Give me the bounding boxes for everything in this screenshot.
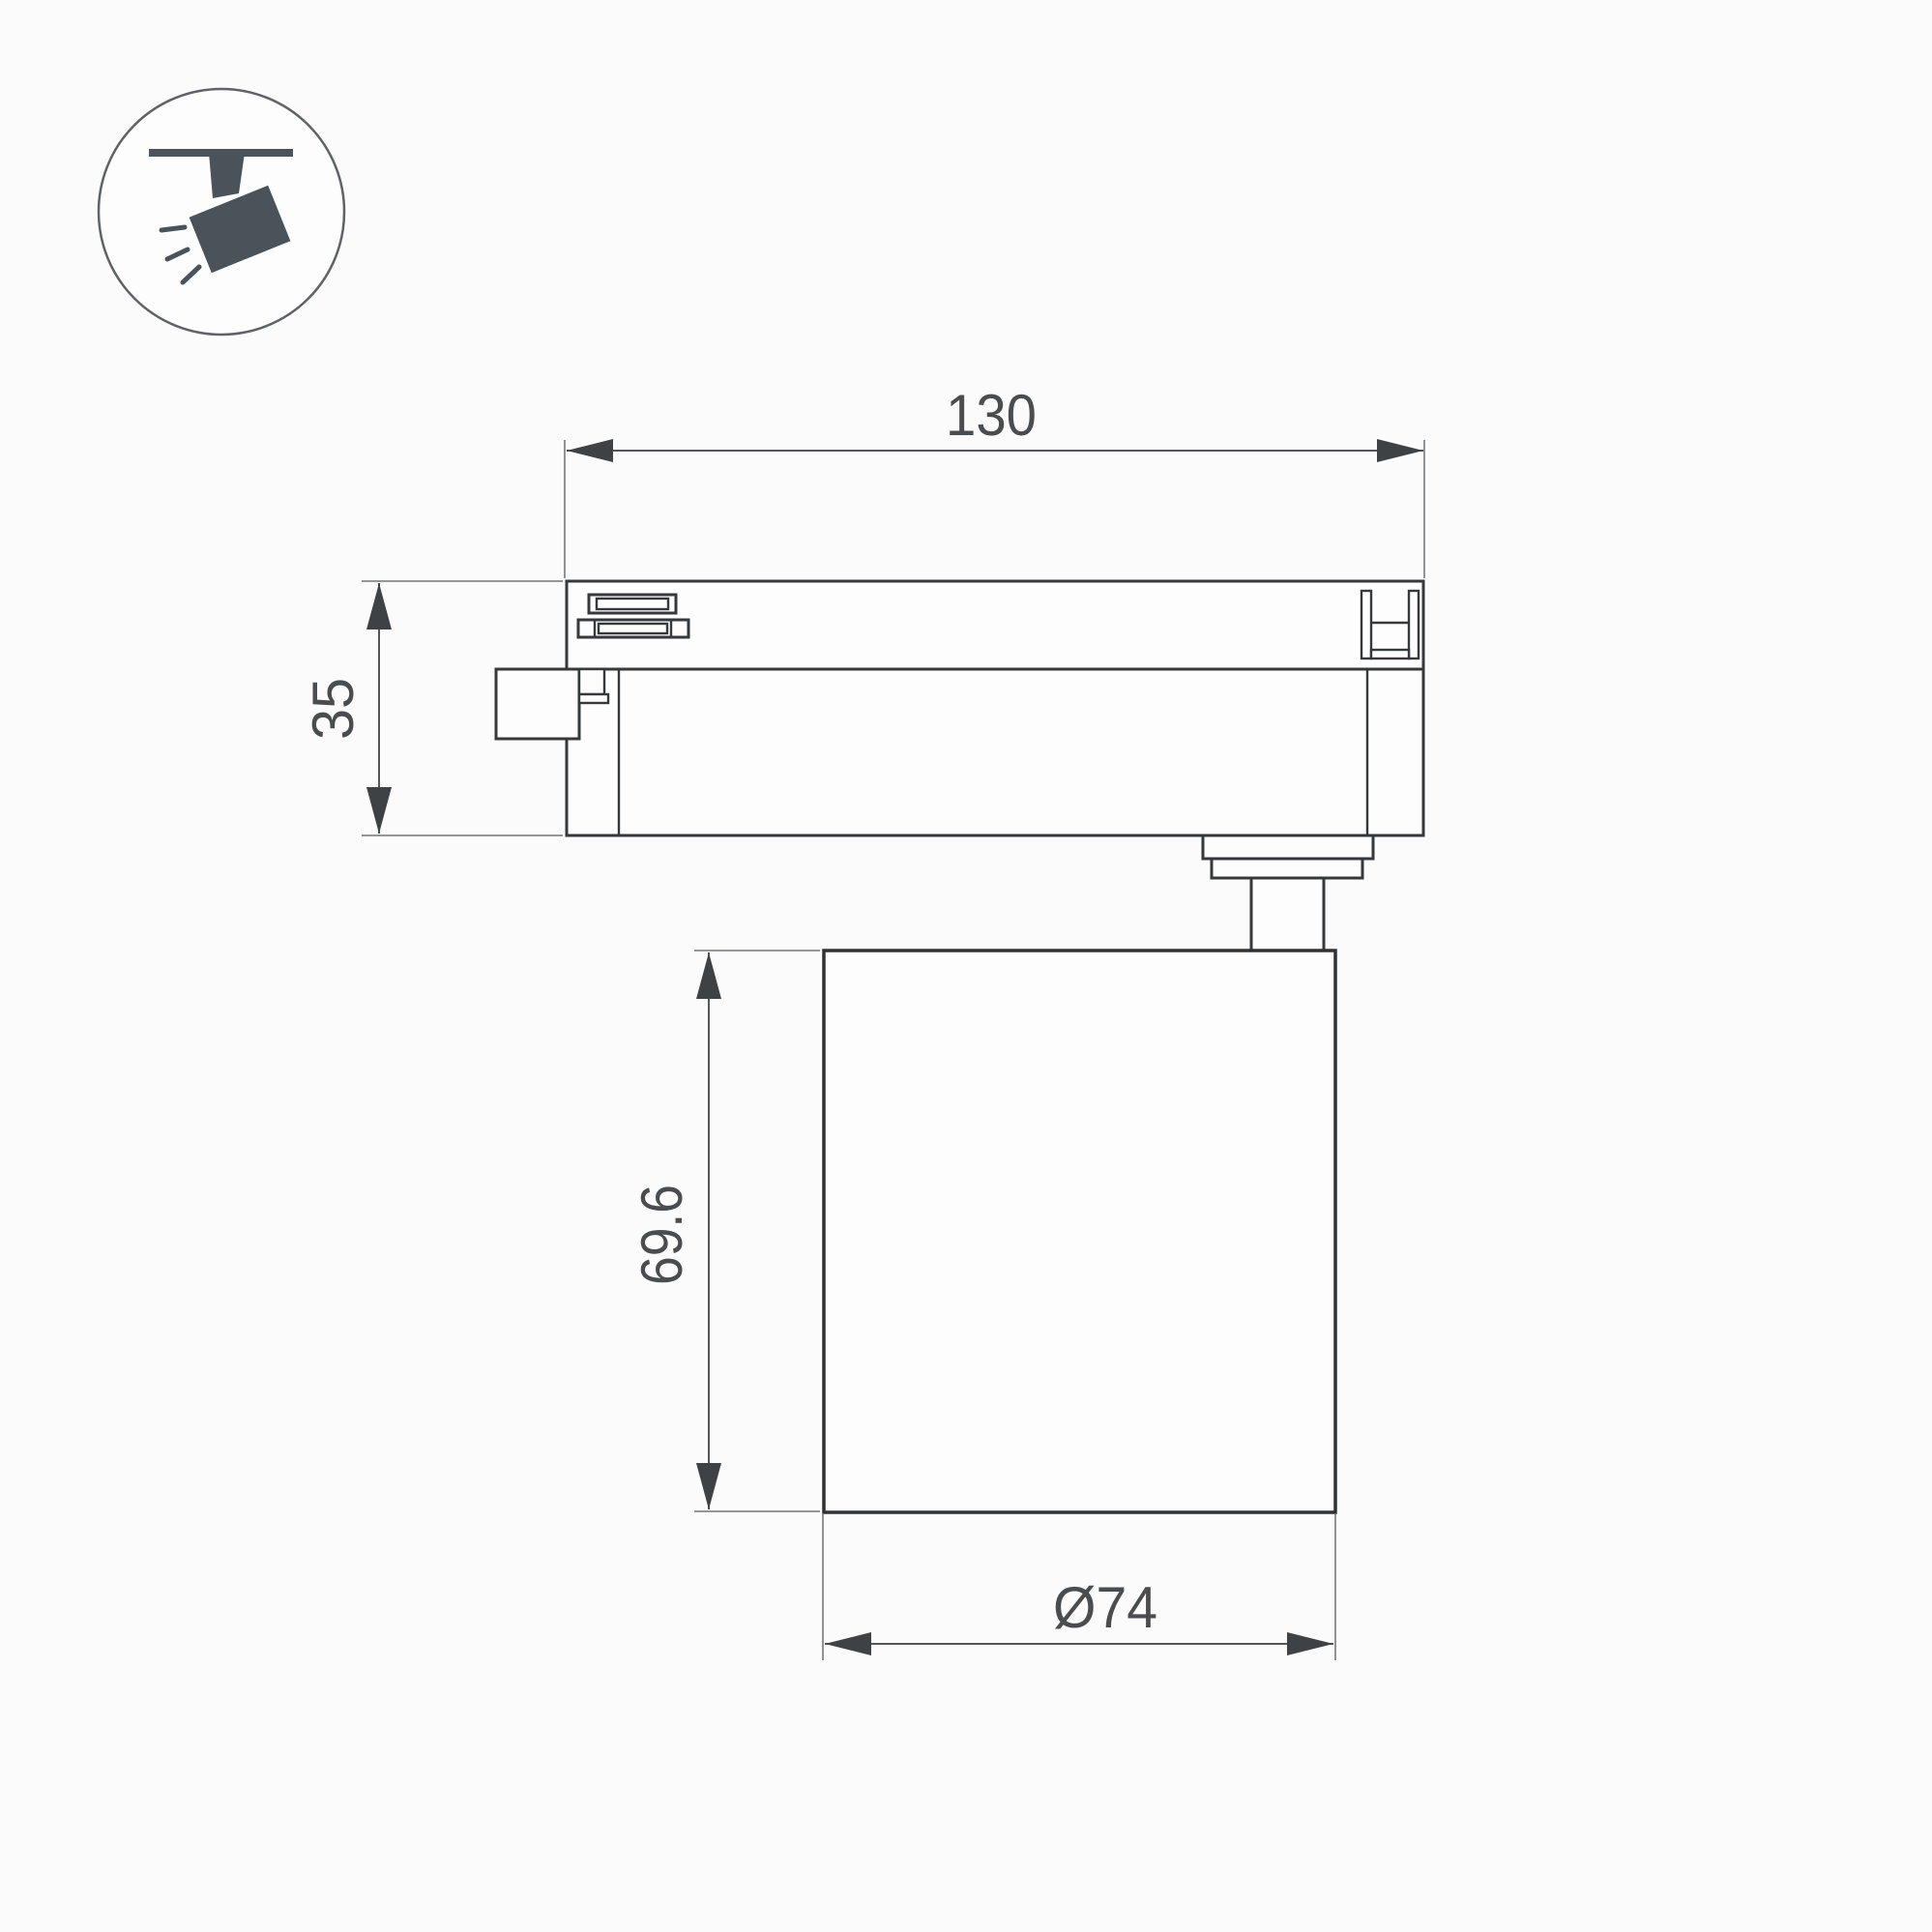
arrowhead-top bbox=[366, 583, 392, 629]
dimension-body-diameter: Ø74 bbox=[823, 1514, 1335, 1660]
arrowhead-right bbox=[1287, 1632, 1333, 1655]
drawing-canvas: 130 35 69.6 Ø74 bbox=[0, 0, 1932, 1932]
dim-label-track-height: 35 bbox=[301, 678, 366, 740]
dim-label-body-height: 69.6 bbox=[629, 1185, 694, 1285]
dim-label-body-diameter: Ø74 bbox=[1053, 1575, 1157, 1640]
arrowhead-bottom bbox=[366, 787, 392, 834]
lock-notch bbox=[579, 669, 604, 694]
swivel-neck bbox=[1203, 835, 1373, 952]
lamp-head-body bbox=[824, 951, 1335, 1512]
arrowhead-right bbox=[1377, 439, 1423, 462]
lock-block bbox=[496, 669, 579, 739]
technical-drawing: 130 35 69.6 Ø74 bbox=[0, 0, 1932, 1932]
clip-upper-inner bbox=[597, 599, 668, 609]
arrowhead-left bbox=[825, 1632, 871, 1655]
spring-clip-bottom-rung bbox=[1371, 650, 1409, 659]
spring-clip-left-bar bbox=[1361, 591, 1371, 659]
icon-light-ray-1 bbox=[161, 227, 185, 230]
dim-label-track-width: 130 bbox=[946, 383, 1037, 448]
spring-clip-right-bar bbox=[1409, 591, 1419, 659]
dimension-body-height: 69.6 bbox=[629, 951, 820, 1511]
neck-step-2 bbox=[1212, 859, 1362, 878]
arrowhead-left bbox=[567, 439, 613, 462]
neck-step-1 bbox=[1203, 835, 1373, 859]
clip-lower-inner bbox=[599, 624, 667, 633]
adapter-body bbox=[567, 581, 1423, 835]
contact-clip-upper bbox=[589, 595, 676, 613]
track-spotlight-icon bbox=[99, 89, 344, 335]
dimension-track-width: 130 bbox=[565, 383, 1424, 578]
lock-tab bbox=[579, 694, 608, 703]
track-adapter-outline bbox=[496, 581, 1423, 835]
arrowhead-bottom bbox=[696, 1463, 721, 1509]
arrowhead-top bbox=[696, 952, 721, 999]
neck-stem bbox=[1251, 878, 1324, 952]
contact-clip-lower bbox=[578, 620, 688, 637]
